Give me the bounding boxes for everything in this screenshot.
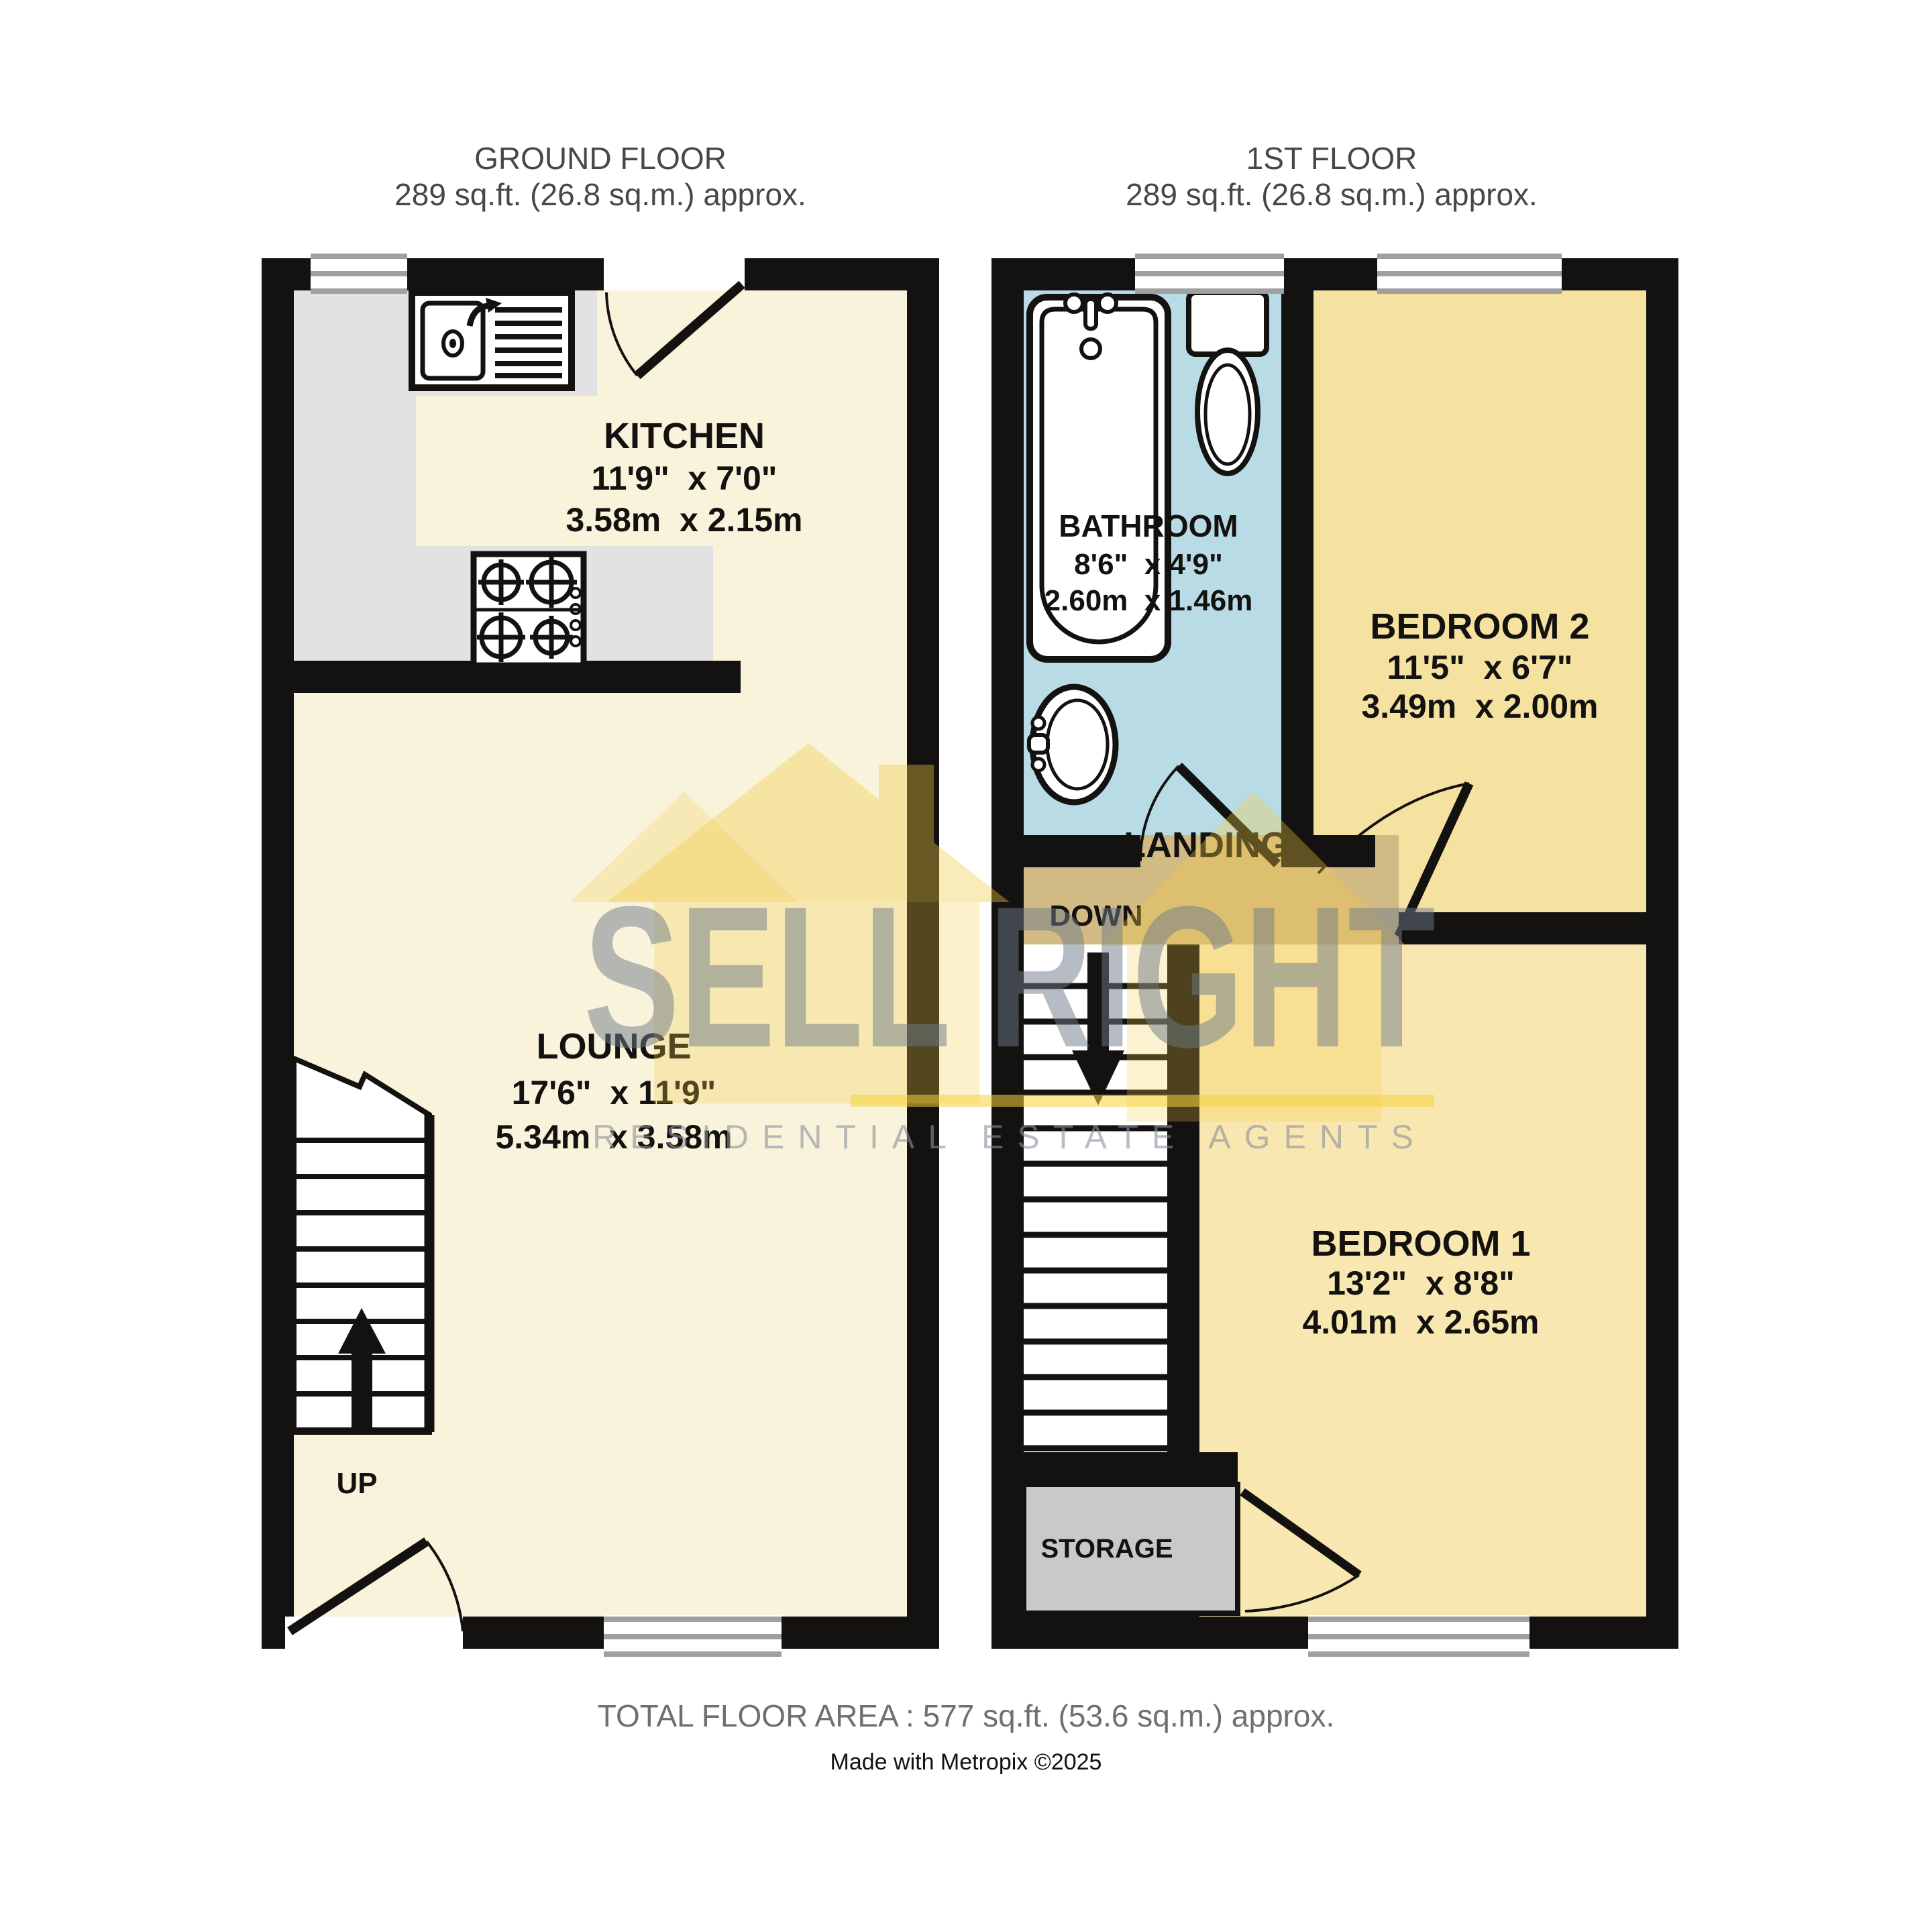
kitchen-window-icon	[311, 254, 407, 294]
lounge-window-icon	[604, 1615, 782, 1657]
bedroom2-dims-metric: 3.49m x 2.00m	[1361, 688, 1598, 725]
bedroom2-label: BEDROOM 2 11'5" x 6'7" 3.49m x 2.00m	[1361, 606, 1598, 725]
wall-bathroom-bedroom2	[1281, 258, 1313, 867]
bathroom-dims-imperial: 8'6" x 4'9"	[1074, 548, 1223, 581]
bedroom1-dims-metric: 4.01m x 2.65m	[1302, 1303, 1539, 1341]
bathroom-label: BATHROOM 8'6" x 4'9" 2.60m x 1.46m	[1044, 508, 1253, 617]
ground-floor-title-name: GROUND FLOOR	[474, 141, 727, 176]
footer: TOTAL FLOOR AREA : 577 sq.ft. (53.6 sq.m…	[598, 1698, 1334, 1775]
bedroom2-name: BEDROOM 2	[1370, 606, 1589, 647]
hob-icon	[474, 554, 584, 665]
kitchen-back-door-opening	[604, 258, 745, 290]
total-floor-area-text: TOTAL FLOOR AREA : 577 sq.ft. (53.6 sq.m…	[598, 1698, 1334, 1733]
wall-stair-bottom	[1024, 1452, 1238, 1484]
storage-label: STORAGE	[1040, 1534, 1173, 1564]
bedroom1-dims-imperial: 13'2" x 8'8"	[1327, 1264, 1515, 1302]
first-floor-title-area: 289 sq.ft. (26.8 sq.m.) approx.	[1126, 177, 1538, 212]
kitchen-lounge-opening	[741, 661, 907, 693]
basin-icon	[1029, 687, 1116, 802]
bedroom1-window-icon	[1308, 1615, 1529, 1657]
metropix-credit-text: Made with Metropix ©2025	[830, 1749, 1102, 1775]
bedroom2-dims-imperial: 11'5" x 6'7"	[1387, 649, 1573, 686]
bathroom-name: BATHROOM	[1059, 508, 1238, 543]
sink-icon	[412, 292, 572, 388]
watermark-brand-text: SELL RIGHT	[584, 864, 1436, 1089]
toilet-icon	[1189, 292, 1267, 474]
ground-floor-title-area: 289 sq.ft. (26.8 sq.m.) approx.	[394, 177, 806, 212]
wall-bedroom2-bottom	[1399, 912, 1646, 944]
kitchen-name: KITCHEN	[604, 416, 765, 456]
bedroom1-name: BEDROOM 1	[1311, 1223, 1530, 1264]
bedroom1-label: BEDROOM 1 13'2" x 8'8" 4.01m x 2.65m	[1302, 1223, 1539, 1341]
watermark-tagline-text: RESIDENTIAL ESTATE AGENTS	[592, 1118, 1427, 1156]
kitchen-dims-metric: 3.58m x 2.15m	[566, 501, 802, 539]
watermark-underline	[851, 1095, 1434, 1107]
first-floor-title: 1ST FLOOR 289 sq.ft. (26.8 sq.m.) approx…	[1126, 141, 1538, 212]
bathroom-window-icon	[1135, 254, 1284, 294]
kitchen-dims-imperial: 11'9" x 7'0"	[592, 459, 777, 497]
up-label: UP	[336, 1467, 377, 1500]
bedroom2-floor	[1313, 290, 1646, 912]
first-floor-title-name: 1ST FLOOR	[1246, 141, 1417, 176]
floorplan-page: GROUND FLOOR 289 sq.ft. (26.8 sq.m.) app…	[0, 0, 1932, 1909]
bedroom2-window-icon	[1377, 254, 1562, 294]
wall-bathroom-bottom	[1024, 835, 1140, 867]
staircase-up: UP	[294, 1058, 429, 1500]
ground-floor-title: GROUND FLOOR 289 sq.ft. (26.8 sq.m.) app…	[394, 141, 806, 212]
bathroom-dims-metric: 2.60m x 1.46m	[1044, 584, 1253, 617]
